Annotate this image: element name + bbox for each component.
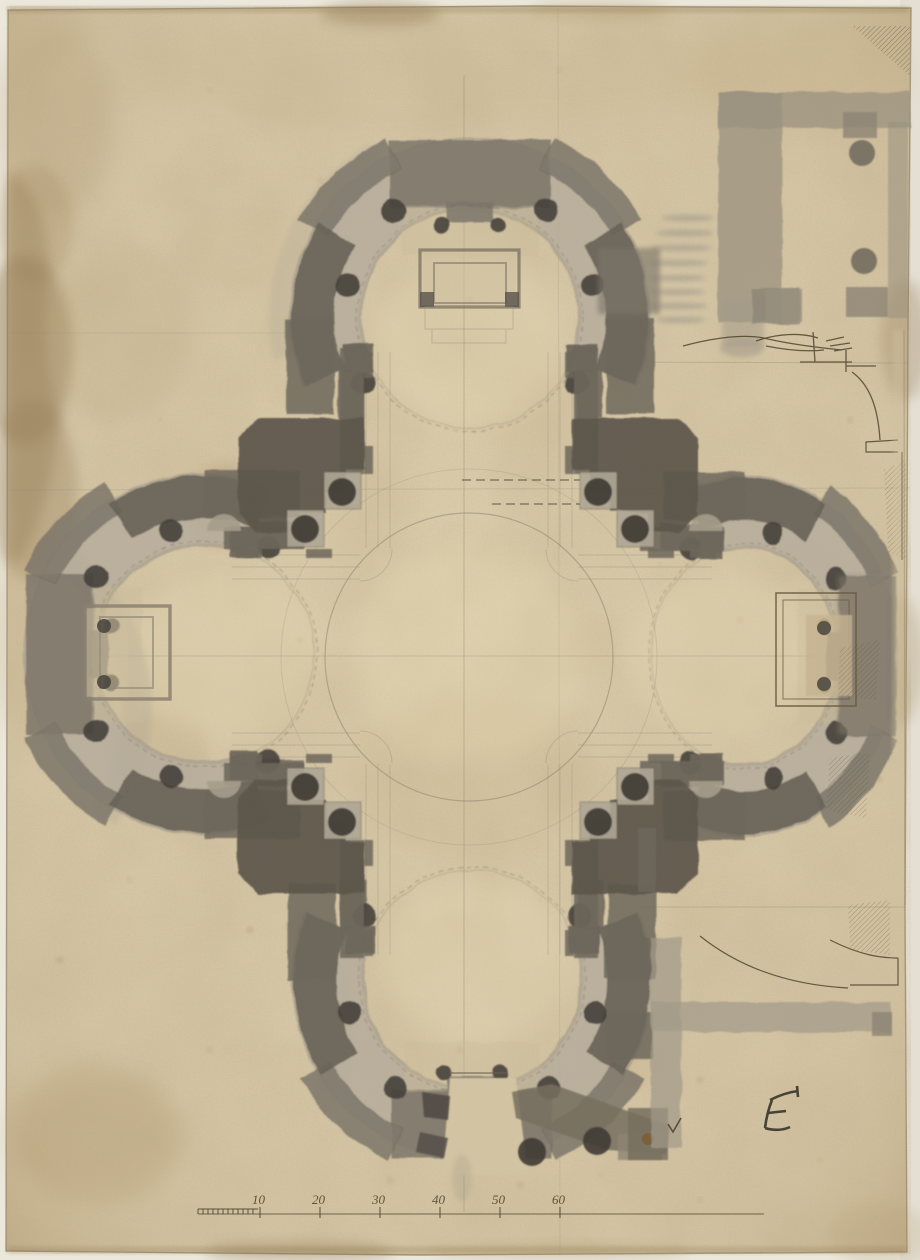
svg-text:40: 40	[432, 1192, 446, 1207]
svg-text:10: 10	[252, 1192, 266, 1207]
svg-text:20: 20	[312, 1192, 326, 1207]
svg-text:30: 30	[371, 1192, 386, 1207]
svg-text:50: 50	[492, 1192, 506, 1207]
svg-text:60: 60	[552, 1192, 566, 1207]
